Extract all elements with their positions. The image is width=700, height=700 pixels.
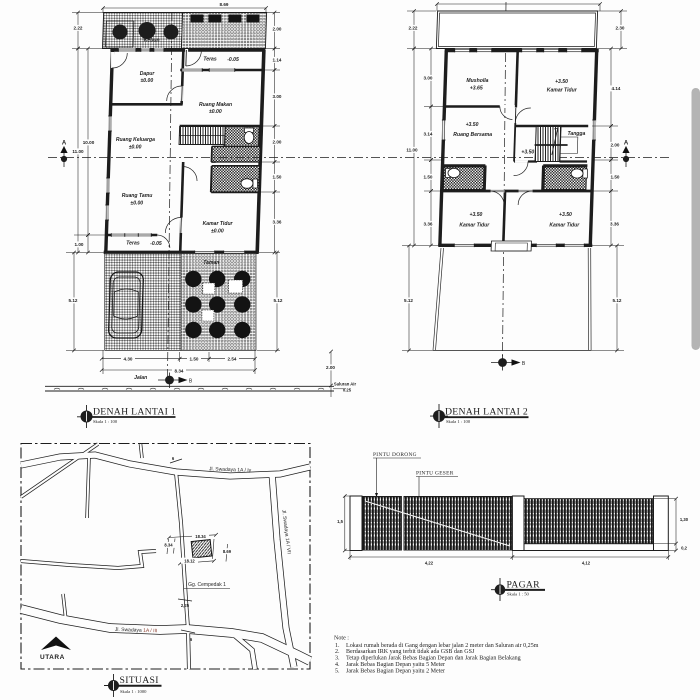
svg-text:2.22: 2.22 xyxy=(409,26,418,31)
svg-text:3.00: 3.00 xyxy=(273,94,282,99)
svg-text:Ruang Keluarga: Ruang Keluarga xyxy=(116,137,155,143)
svg-text:4,22: 4,22 xyxy=(425,561,434,566)
svg-text:±0.00: ±0.00 xyxy=(140,78,153,84)
svg-text:Ruang Bersama: Ruang Bersama xyxy=(453,132,492,138)
svg-text:Berdasarkan IRK yang terbit ti: Berdasarkan IRK yang terbit tidak ada GS… xyxy=(346,649,475,655)
svg-text:Tetap diperlukan Jarak Bebas B: Tetap diperlukan Jarak Bebas Bagian Depa… xyxy=(346,656,521,662)
svg-text:SITUASI: SITUASI xyxy=(120,675,159,686)
svg-text:1.14: 1.14 xyxy=(273,58,282,63)
svg-text:3.14: 3.14 xyxy=(424,132,433,137)
svg-text:Skala 1 : 50: Skala 1 : 50 xyxy=(507,592,530,597)
svg-text:5.: 5. xyxy=(335,668,340,674)
svg-text:Saluran Air: Saluran Air xyxy=(334,382,357,387)
svg-text:Jarak Bebas Bagian Depan yaitu: Jarak Bebas Bagian Depan yaitu 5 Meter xyxy=(346,662,445,668)
svg-text:Kamar Tidur: Kamar Tidur xyxy=(203,221,234,227)
svg-text:Skala 1 : 100: Skala 1 : 100 xyxy=(446,419,471,424)
svg-text:+3.50: +3.50 xyxy=(521,150,534,156)
svg-text:18.12: 18.12 xyxy=(184,558,195,563)
svg-text:2.54: 2.54 xyxy=(228,357,237,362)
svg-text:+3.50: +3.50 xyxy=(555,79,568,85)
svg-text:Tangga: Tangga xyxy=(567,131,585,137)
svg-text:0.25: 0.25 xyxy=(343,388,352,393)
svg-text:±0.00: ±0.00 xyxy=(129,145,142,151)
svg-text:A: A xyxy=(62,141,67,147)
svg-text:1.50: 1.50 xyxy=(611,175,620,180)
svg-text:2.00: 2.00 xyxy=(611,143,620,148)
svg-text:Ruang Tamu: Ruang Tamu xyxy=(122,193,154,199)
svg-text:4,12: 4,12 xyxy=(582,561,591,566)
svg-text:Skala 1 : 1000: Skala 1 : 1000 xyxy=(120,689,147,694)
svg-text:2.30: 2.30 xyxy=(616,26,625,31)
svg-text:1.50: 1.50 xyxy=(273,175,282,180)
svg-text:3.36: 3.36 xyxy=(273,220,282,225)
svg-text:-0.05: -0.05 xyxy=(227,57,239,63)
svg-text:2.00: 2.00 xyxy=(326,365,335,370)
svg-text:3.: 3. xyxy=(335,656,340,662)
svg-text:Taman: Taman xyxy=(203,260,219,266)
svg-text:DENAH LANTAI 2: DENAH LANTAI 2 xyxy=(445,406,528,417)
svg-text:3.36: 3.36 xyxy=(424,222,433,227)
svg-text:1.50: 1.50 xyxy=(424,175,433,180)
svg-text:4.14: 4.14 xyxy=(612,86,621,91)
svg-text:Kamar Tidur: Kamar Tidur xyxy=(459,223,490,229)
svg-text:2.00: 2.00 xyxy=(273,140,282,145)
svg-text:Kamar Tidur: Kamar Tidur xyxy=(549,223,580,229)
svg-text:±0.00: ±0.00 xyxy=(211,229,224,235)
svg-text:Jalan: Jalan xyxy=(134,375,147,381)
svg-text:+3.50: +3.50 xyxy=(559,212,572,218)
svg-text:Lokasi rumah berada di Gang de: Lokasi rumah berada di Gang dengan lebar… xyxy=(346,643,539,649)
svg-text:0,2: 0,2 xyxy=(681,546,687,551)
svg-text:Teras: Teras xyxy=(126,241,140,247)
svg-text:11.00: 11.00 xyxy=(406,148,418,153)
svg-text:±0.00: ±0.00 xyxy=(130,201,143,207)
svg-text:1.00: 1.00 xyxy=(75,242,84,247)
svg-text:4.30: 4.30 xyxy=(124,357,133,362)
svg-text:Jarak Bebas Bagian Depan yaitu: Jarak Bebas Bagian Depan yaitu 2 Meter xyxy=(346,668,445,674)
svg-text:5.12: 5.12 xyxy=(274,298,283,303)
svg-text:8.69: 8.69 xyxy=(220,2,229,7)
svg-text:11.00: 11.00 xyxy=(72,149,84,154)
svg-text:18.34: 18.34 xyxy=(195,534,206,539)
svg-text:+3.50: +3.50 xyxy=(466,122,479,128)
svg-text:8.34: 8.34 xyxy=(164,543,173,548)
svg-text:PINTU DORONG: PINTU DORONG xyxy=(373,452,417,458)
svg-text:2.: 2. xyxy=(335,649,340,655)
svg-text:PINTU GESER: PINTU GESER xyxy=(416,471,454,477)
svg-text:-0.05: -0.05 xyxy=(150,241,162,247)
svg-text:A: A xyxy=(624,141,629,147)
svg-text:3.36: 3.36 xyxy=(610,222,619,227)
svg-text:3.00: 3.00 xyxy=(424,76,433,81)
svg-text:1,30: 1,30 xyxy=(680,517,689,522)
svg-text:±0.00: ±0.00 xyxy=(209,109,222,115)
svg-text:Kamar Tidur: Kamar Tidur xyxy=(547,88,578,94)
svg-text:Note :: Note : xyxy=(334,636,349,642)
svg-text:Ruang Makan: Ruang Makan xyxy=(199,102,232,108)
svg-text:4.: 4. xyxy=(335,662,340,668)
svg-text:2.00: 2.00 xyxy=(273,27,282,32)
svg-text:1.50: 1.50 xyxy=(190,357,199,362)
svg-text:2.22: 2.22 xyxy=(74,26,83,31)
svg-text:Gg. Cempedak 1: Gg. Cempedak 1 xyxy=(188,582,226,588)
svg-text:1.: 1. xyxy=(335,643,340,649)
svg-text:2,25: 2,25 xyxy=(181,603,190,608)
svg-text:1,5: 1,5 xyxy=(337,519,343,524)
svg-text:8.34: 8.34 xyxy=(175,369,184,374)
svg-text:+3.50: +3.50 xyxy=(469,212,482,218)
svg-text:PAGAR: PAGAR xyxy=(507,579,541,590)
svg-text:Dapur: Dapur xyxy=(140,71,156,77)
svg-text:UTARA: UTARA xyxy=(40,654,65,661)
svg-text:Teras: Teras xyxy=(203,57,217,63)
svg-text:5.12: 5.12 xyxy=(69,298,78,303)
svg-text:Kebun: Kebun xyxy=(144,38,160,44)
svg-text:10.00: 10.00 xyxy=(83,140,95,145)
svg-text:Musholla: Musholla xyxy=(466,78,488,84)
svg-text:8.69: 8.69 xyxy=(223,549,232,554)
svg-text:DENAH LANTAI 1: DENAH LANTAI 1 xyxy=(93,407,176,418)
svg-text:5.12: 5.12 xyxy=(404,298,413,303)
svg-text:5.12: 5.12 xyxy=(613,298,622,303)
svg-text:+3.65: +3.65 xyxy=(470,86,483,92)
svg-text:Skala 1 : 100: Skala 1 : 100 xyxy=(93,419,118,424)
